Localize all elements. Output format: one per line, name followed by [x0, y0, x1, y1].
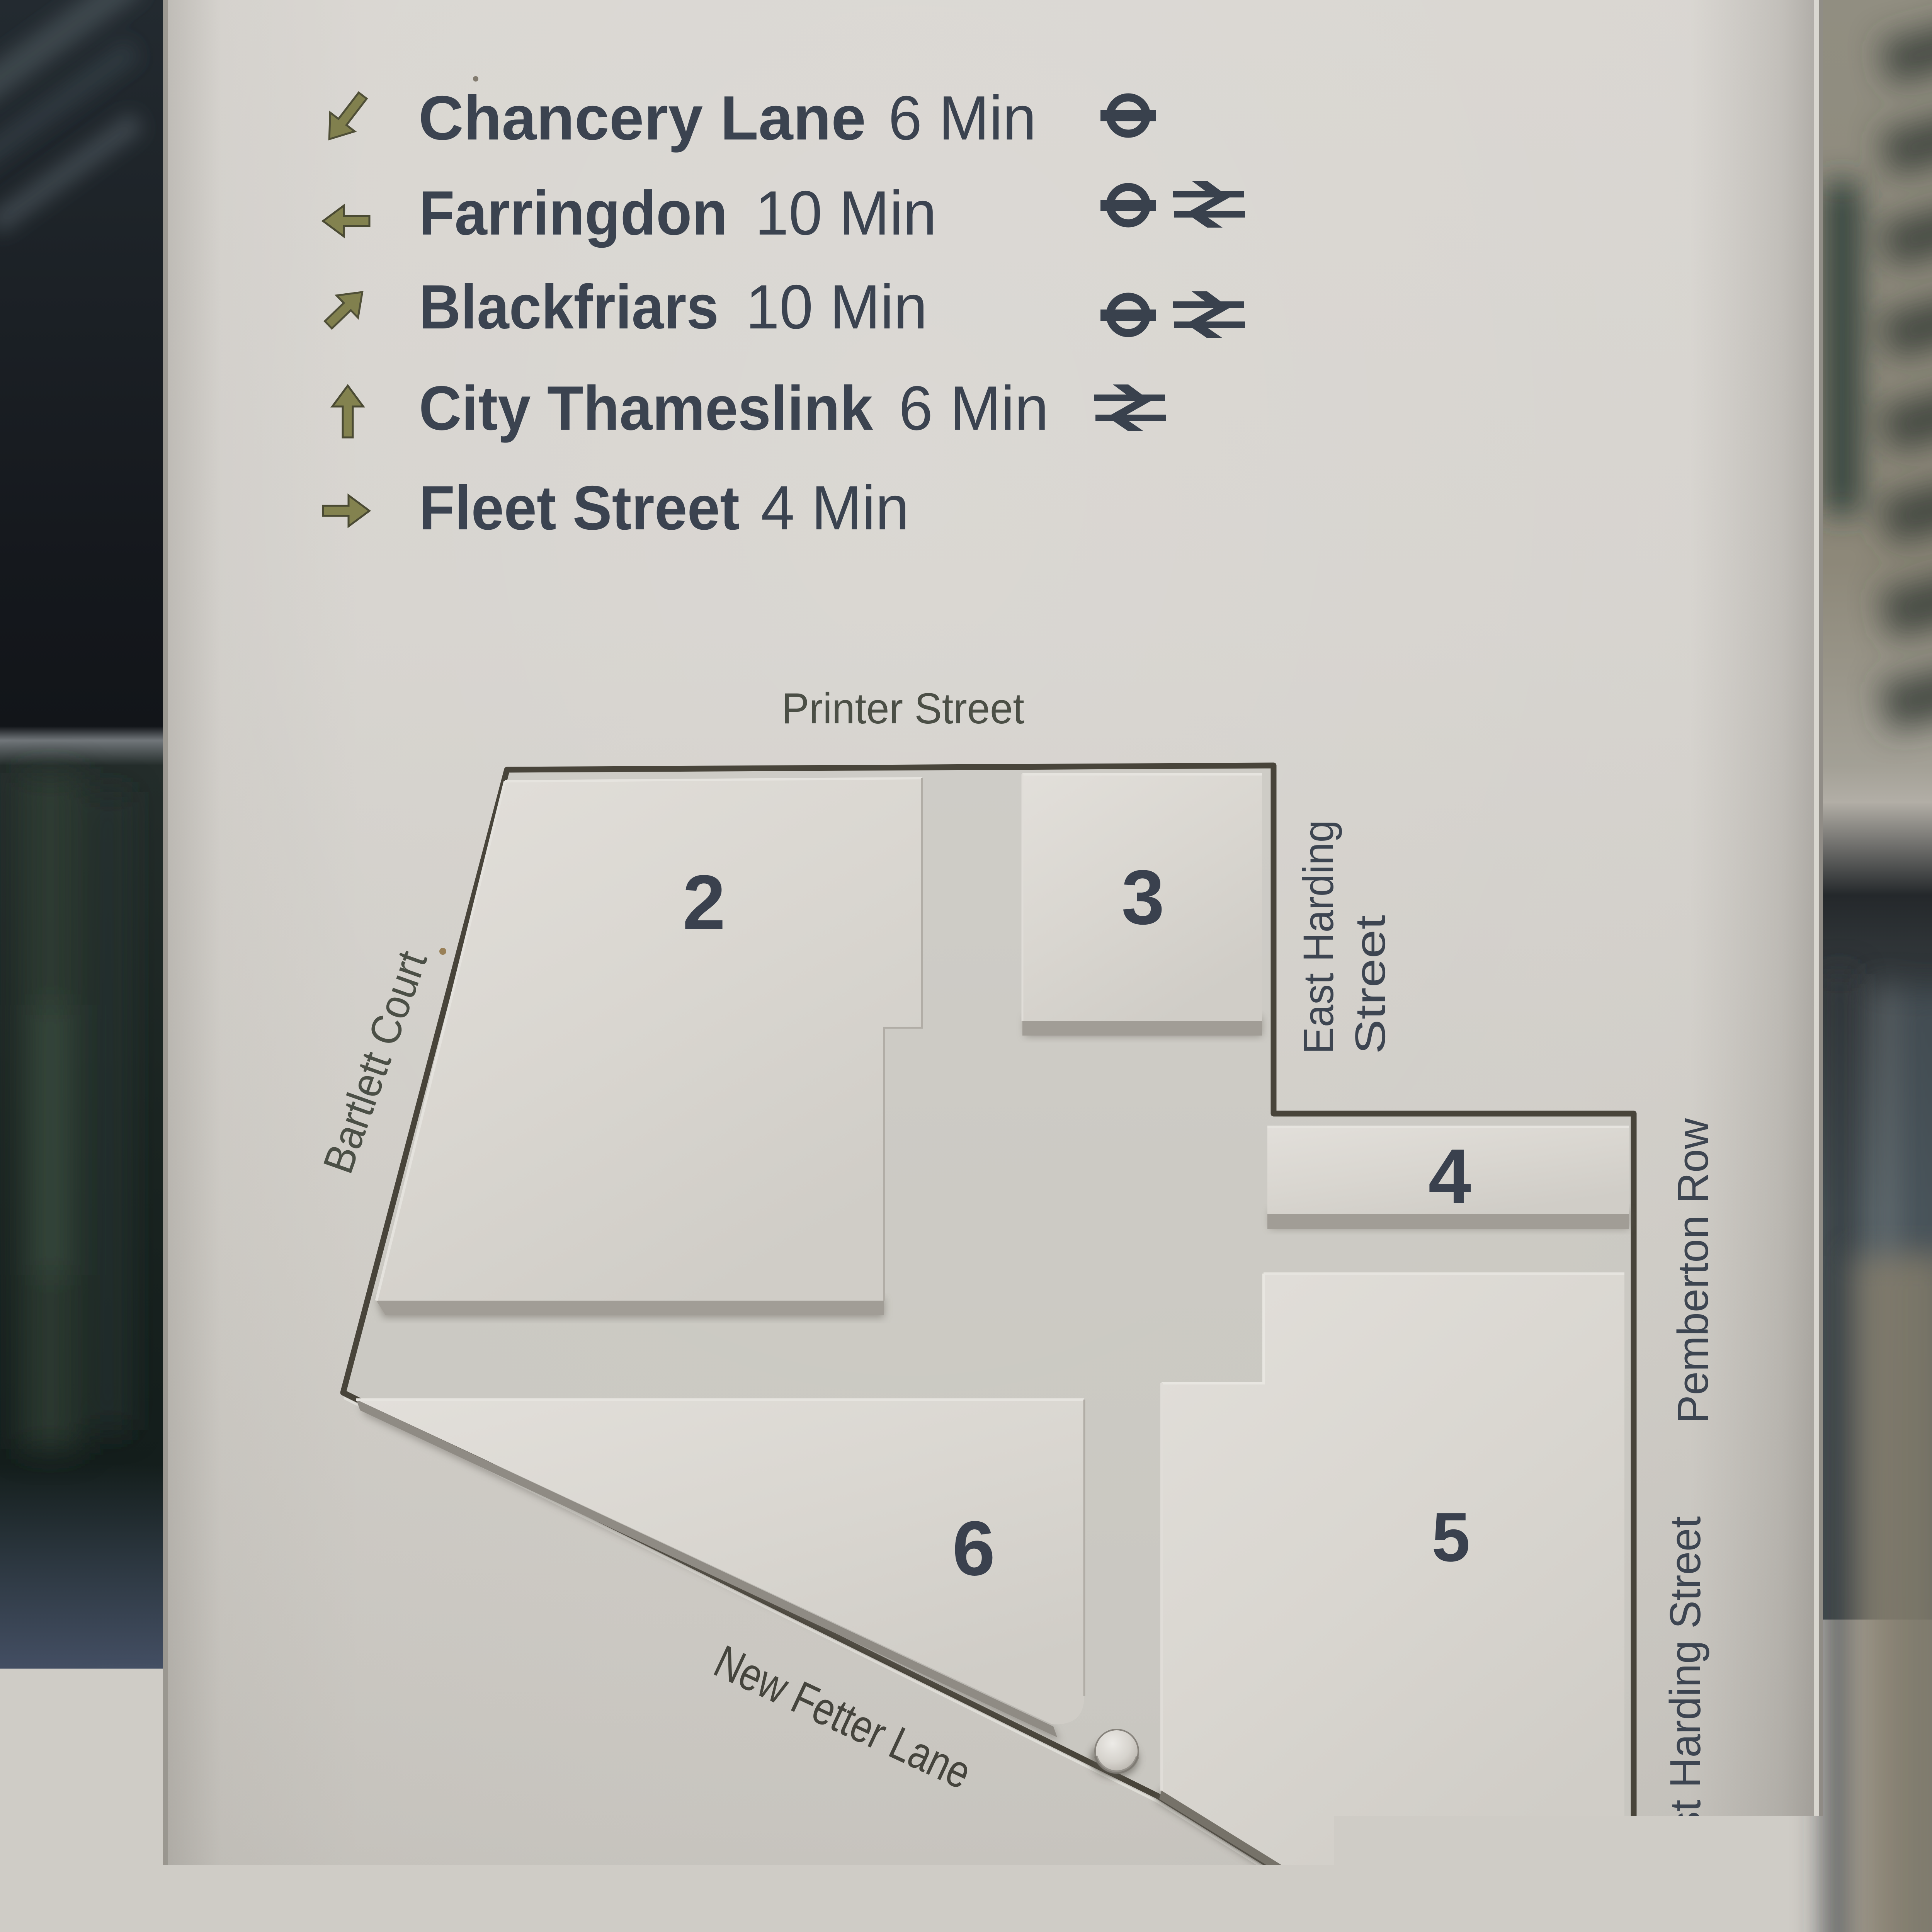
svg-text:6 Min: 6 Min [888, 83, 1036, 153]
svg-text:East Harding: East Harding [1295, 820, 1342, 1054]
svg-text:Blackfriars: Blackfriars [419, 272, 719, 342]
svg-text:4: 4 [1428, 1133, 1471, 1219]
svg-text:5: 5 [1432, 1498, 1470, 1576]
svg-text:10 Min: 10 Min [746, 272, 927, 342]
svg-text:6: 6 [952, 1505, 995, 1592]
svg-text:West Harding Street: West Harding Street [1661, 1516, 1709, 1895]
svg-text:3: 3 [1121, 854, 1164, 940]
svg-text:Printer Street: Printer Street [782, 684, 1024, 733]
svg-text:Farringdon: Farringdon [419, 178, 728, 248]
svg-text:Chancery Lane: Chancery Lane [418, 83, 866, 153]
svg-text:Street: Street [1347, 915, 1394, 1054]
svg-text:Fleet Street: Fleet Street [419, 473, 740, 543]
svg-text:Pemberton Row: Pemberton Row [1669, 1118, 1717, 1423]
svg-text:2: 2 [682, 859, 725, 946]
svg-text:City Thameslink: City Thameslink [419, 373, 873, 443]
svg-text:4 Min: 4 Min [761, 473, 909, 543]
svg-text:6 Min: 6 Min [899, 373, 1049, 443]
svg-text:10 Min: 10 Min [755, 178, 937, 248]
